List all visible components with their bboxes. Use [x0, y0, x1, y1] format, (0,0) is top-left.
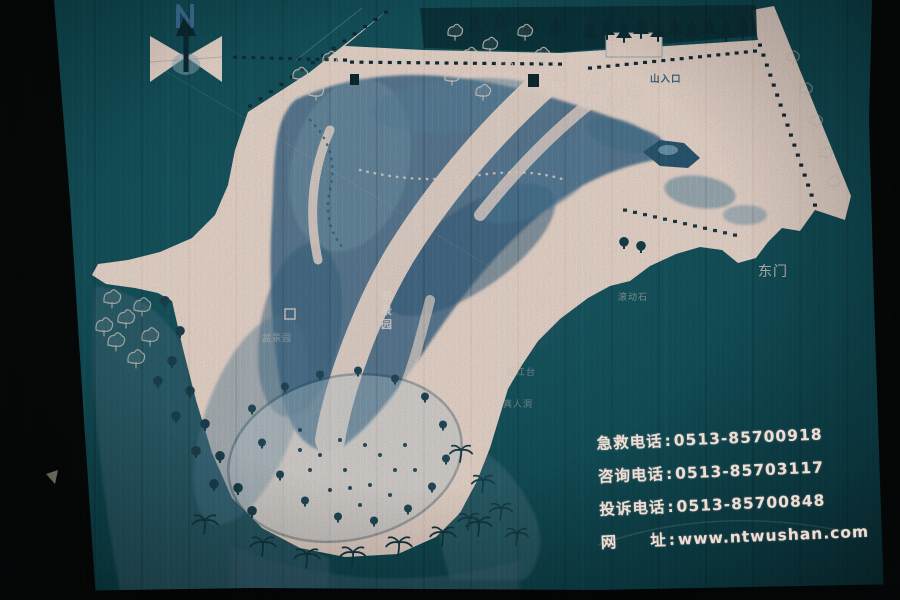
contact-value: www.ntwushan.com — [678, 523, 870, 549]
contact-label: 网 址 — [600, 531, 667, 552]
contact-value: 0513-85700918 — [673, 426, 822, 450]
contact-label: 急救电话 — [596, 432, 663, 453]
contact-label: 投诉电话 — [599, 498, 666, 519]
contact-info-block: 急救电话:0513-85700918咨询电话:0513-85703117投诉电话… — [596, 416, 891, 560]
contact-label: 咨询电话 — [598, 465, 665, 486]
photo-of-map-sign: 山入口东门滚动石翠景园盆景园望江台真人洞 急救电话:0513-85700918咨… — [0, 0, 900, 600]
contact-value: 0513-85703117 — [675, 458, 824, 482]
contact-value: 0513-85700848 — [676, 491, 825, 515]
